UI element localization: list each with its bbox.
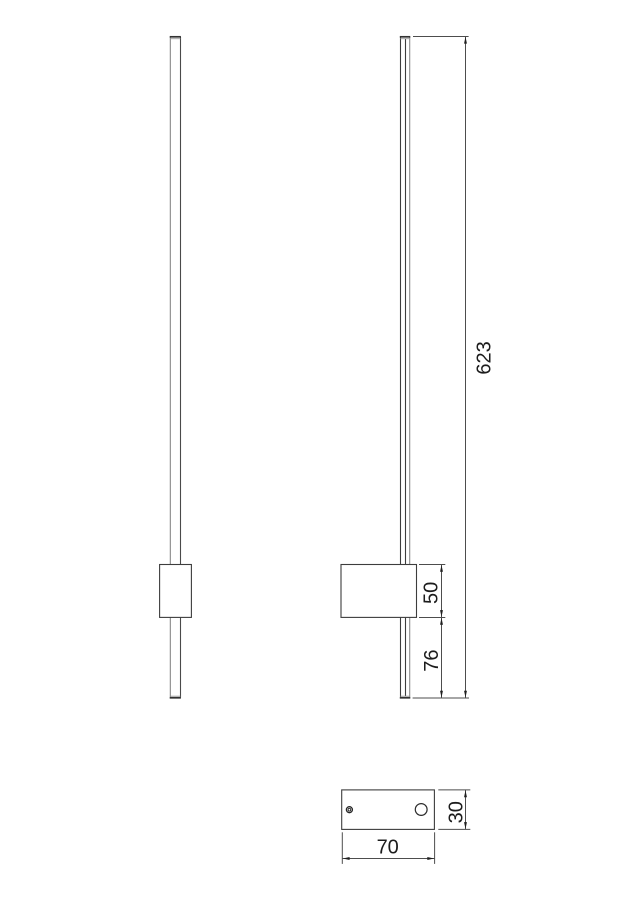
svg-text:30: 30 <box>446 801 468 823</box>
svg-text:623: 623 <box>474 341 496 374</box>
svg-text:50: 50 <box>421 582 443 604</box>
svg-text:76: 76 <box>421 649 443 671</box>
svg-text:70: 70 <box>377 837 399 859</box>
